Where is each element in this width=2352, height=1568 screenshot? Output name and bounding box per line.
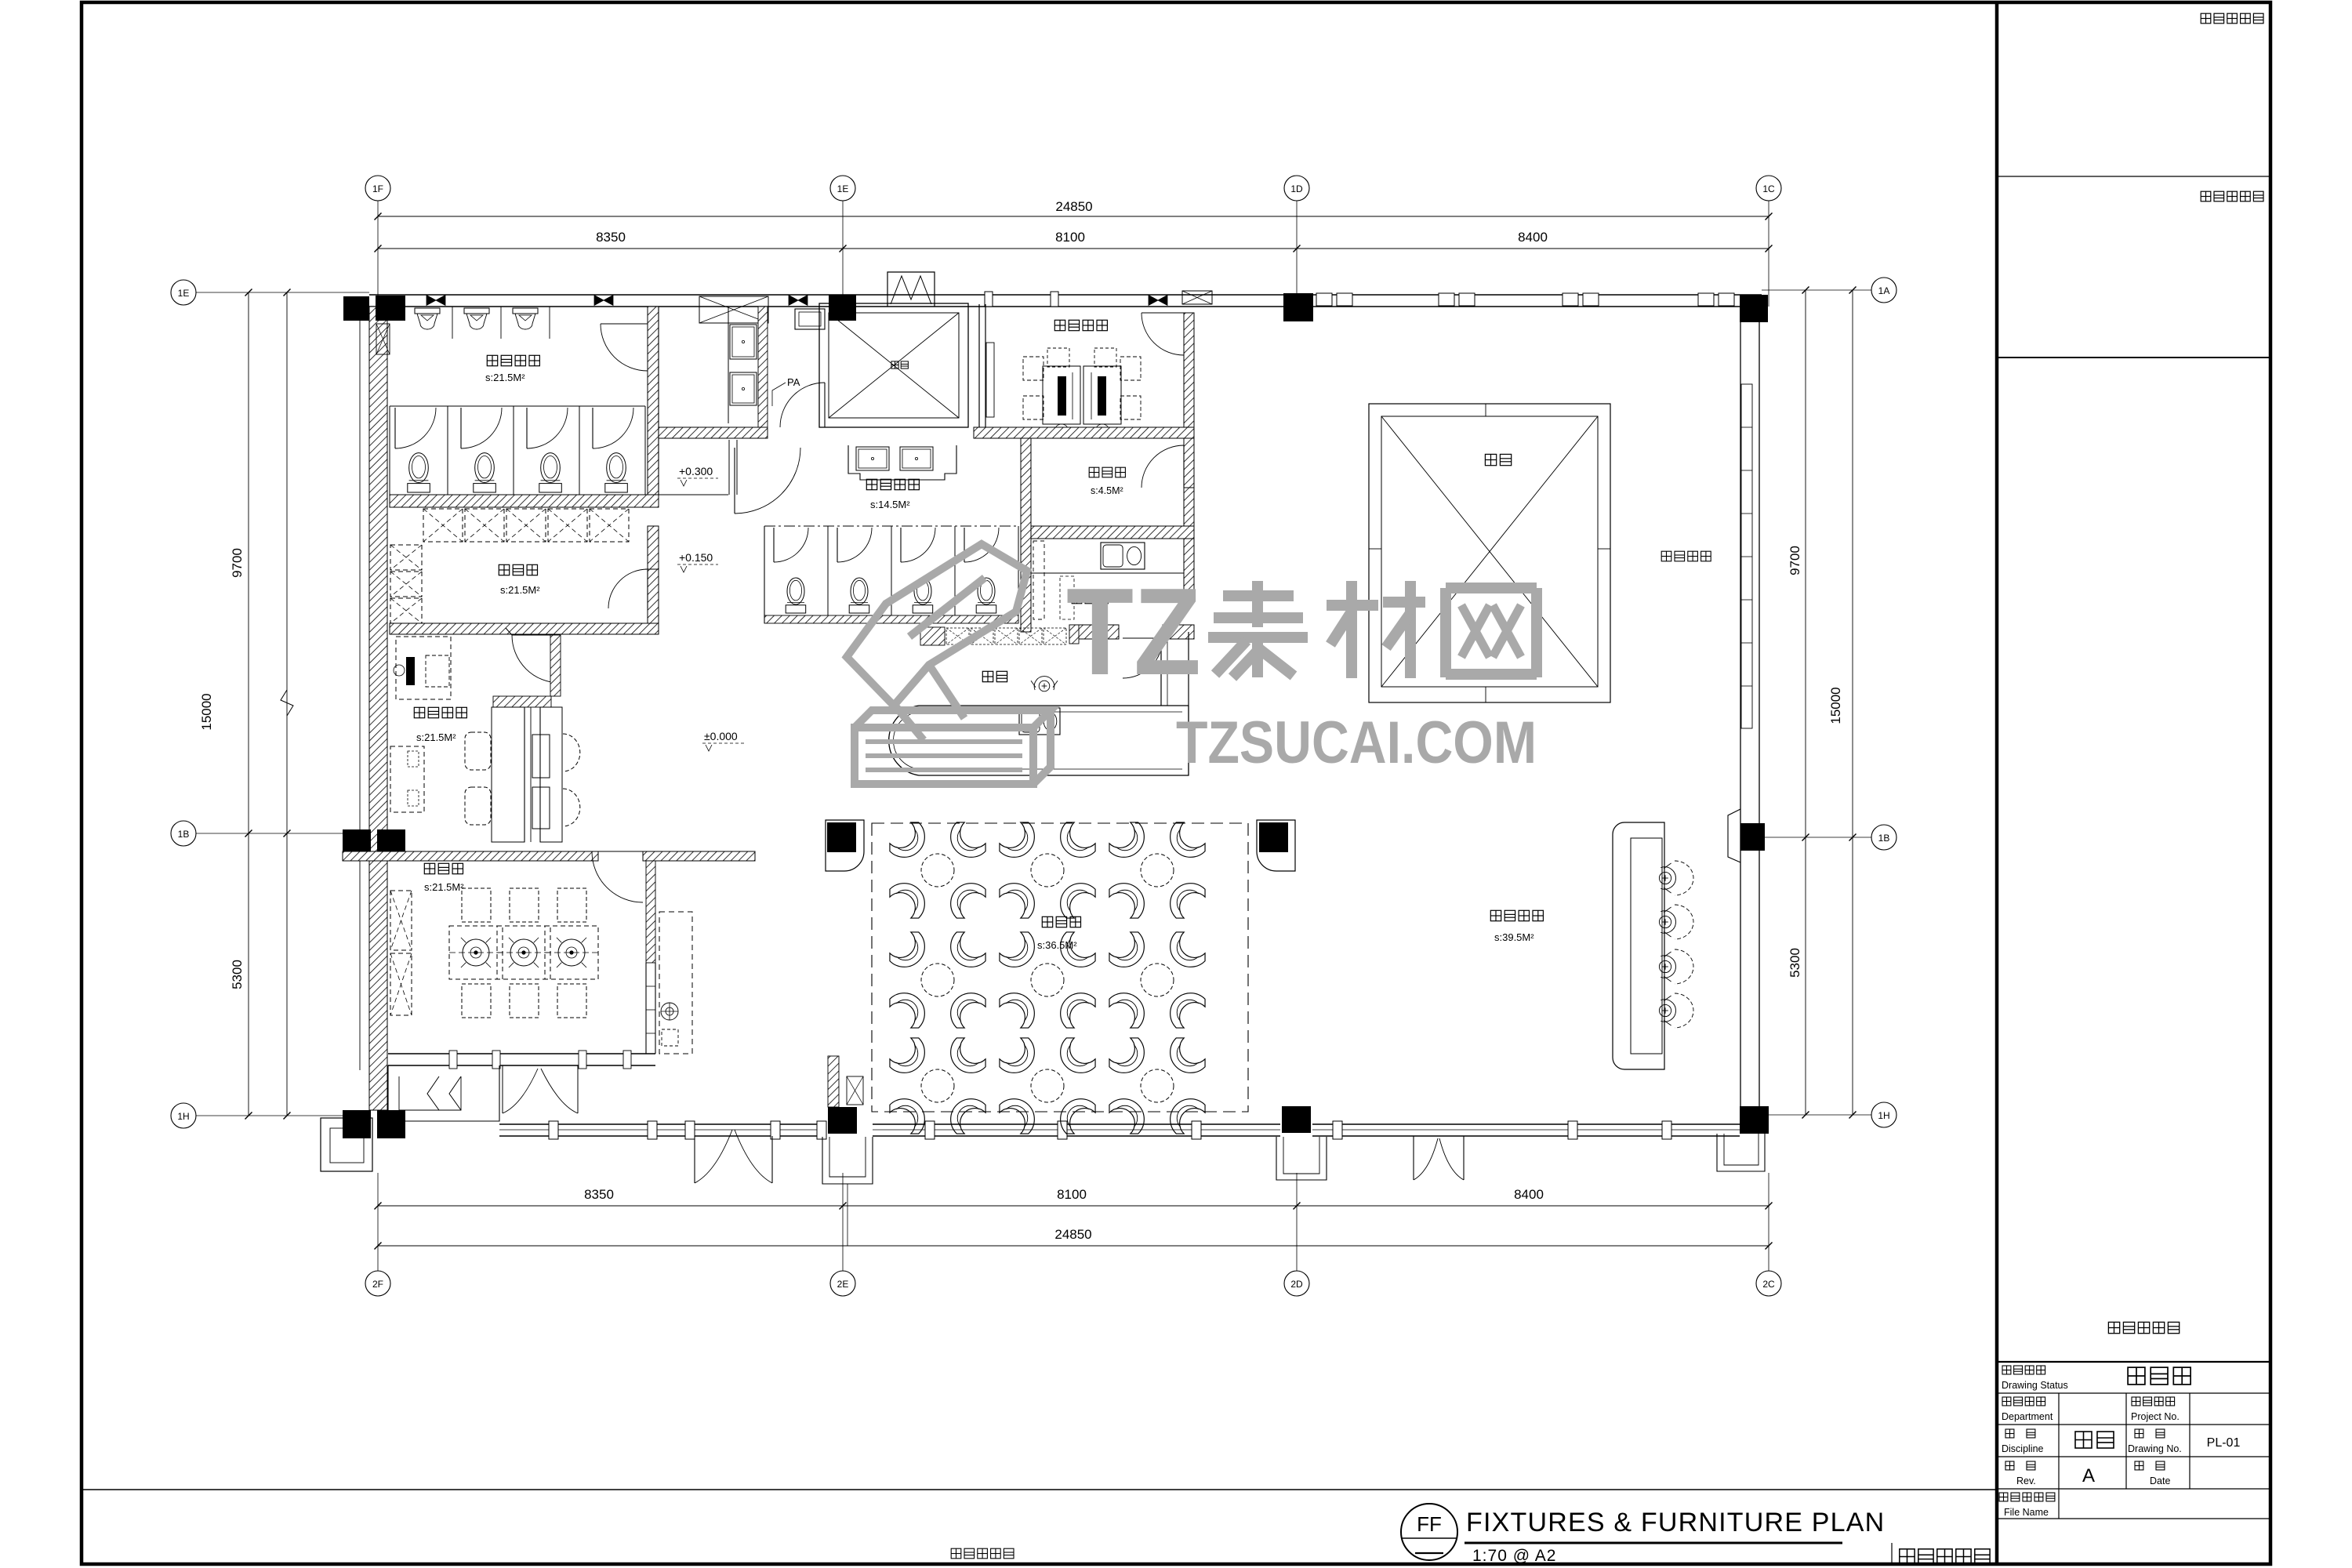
svg-text:s:39.5M²: s:39.5M² [1494,931,1534,943]
svg-text:2E: 2E [837,1279,849,1290]
svg-text:+0.150: +0.150 [679,551,713,564]
svg-text:TZSUCAI.COM: TZSUCAI.COM [1176,710,1537,776]
svg-text:15000: 15000 [199,693,214,730]
svg-text:1H: 1H [177,1111,189,1122]
svg-text:8100: 8100 [1055,230,1085,245]
svg-text:s:21.5M²: s:21.5M² [485,372,525,383]
svg-text:+0.300: +0.300 [679,465,713,477]
svg-text:TZ: TZ [1066,563,1201,701]
svg-text:2F: 2F [372,1279,383,1290]
svg-text:s:4.5M²: s:4.5M² [1091,485,1123,496]
svg-text:5300: 5300 [1788,948,1802,978]
svg-text:s:21.5M²: s:21.5M² [416,731,456,743]
svg-text:8350: 8350 [584,1187,614,1202]
svg-text:PL-01: PL-01 [2207,1436,2241,1450]
svg-text:A: A [2082,1465,2095,1486]
svg-text:Drawing No.: Drawing No. [2128,1443,2182,1454]
svg-text:1B: 1B [178,829,190,840]
svg-text:5300: 5300 [230,960,245,989]
svg-text:1E: 1E [837,183,849,194]
svg-text:8350: 8350 [596,230,626,245]
svg-text:24850: 24850 [1055,199,1092,214]
svg-text:2C: 2C [1762,1279,1775,1290]
svg-text:Project No.: Project No. [2131,1411,2180,1422]
svg-text:FIXTURES & FURNITURE PLAN: FIXTURES & FURNITURE PLAN [1466,1508,1885,1537]
svg-text:24850: 24850 [1054,1227,1091,1242]
svg-text:Drawing Status: Drawing Status [2002,1380,2068,1391]
svg-text:2D: 2D [1290,1279,1303,1290]
svg-text:1B: 1B [1878,833,1890,844]
svg-text:1:70 @ A2: 1:70 @ A2 [1472,1547,1556,1565]
svg-text:File Name: File Name [2004,1507,2049,1518]
svg-text:Discipline: Discipline [2002,1443,2044,1454]
svg-text:±0.000: ±0.000 [704,730,738,742]
svg-text:1F: 1F [372,183,383,194]
svg-text:8400: 8400 [1514,1187,1544,1202]
svg-text:1D: 1D [1290,183,1303,194]
svg-text:9700: 9700 [230,548,245,578]
svg-text:PA: PA [787,376,800,388]
svg-text:1C: 1C [1762,183,1775,194]
svg-text:1E: 1E [178,288,190,299]
svg-text:FF: FF [1417,1512,1442,1536]
svg-text:1H: 1H [1878,1110,1889,1121]
svg-text:1A: 1A [1878,285,1890,296]
svg-text:s:21.5M²: s:21.5M² [500,584,540,596]
svg-text:15000: 15000 [1828,687,1843,724]
svg-text:Date: Date [2150,1475,2170,1486]
svg-text:9700: 9700 [1788,546,1802,575]
svg-text:8100: 8100 [1057,1187,1087,1202]
svg-text:Rev.: Rev. [2016,1475,2036,1486]
svg-text:8400: 8400 [1518,230,1548,245]
svg-text:Department: Department [2002,1411,2053,1422]
svg-text:s:14.5M²: s:14.5M² [870,499,910,510]
svg-text:s:21.5M²: s:21.5M² [424,881,464,893]
